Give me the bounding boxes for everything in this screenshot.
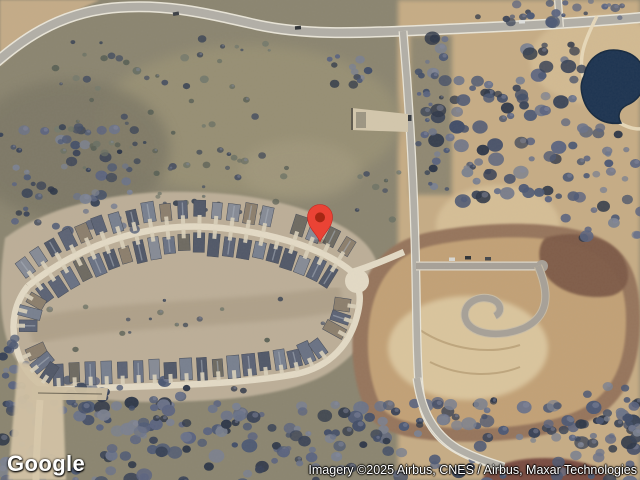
imagery-attribution: Imagery ©2025 Airbus, CNES / Airbus, Max… [308, 463, 637, 477]
pin-dot [315, 212, 325, 222]
map-canvas [0, 0, 640, 480]
google-logo[interactable]: Google [7, 451, 85, 477]
satellite-map[interactable]: Google Imagery ©2025 Airbus, CNES / Airb… [0, 0, 640, 480]
